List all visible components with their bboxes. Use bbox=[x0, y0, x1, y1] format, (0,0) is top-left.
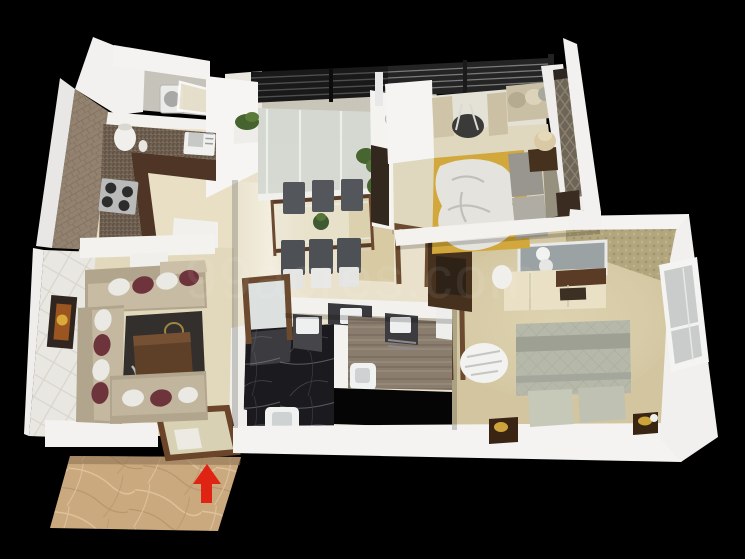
svg-text:99acres.com: 99acres.com bbox=[185, 246, 539, 311]
